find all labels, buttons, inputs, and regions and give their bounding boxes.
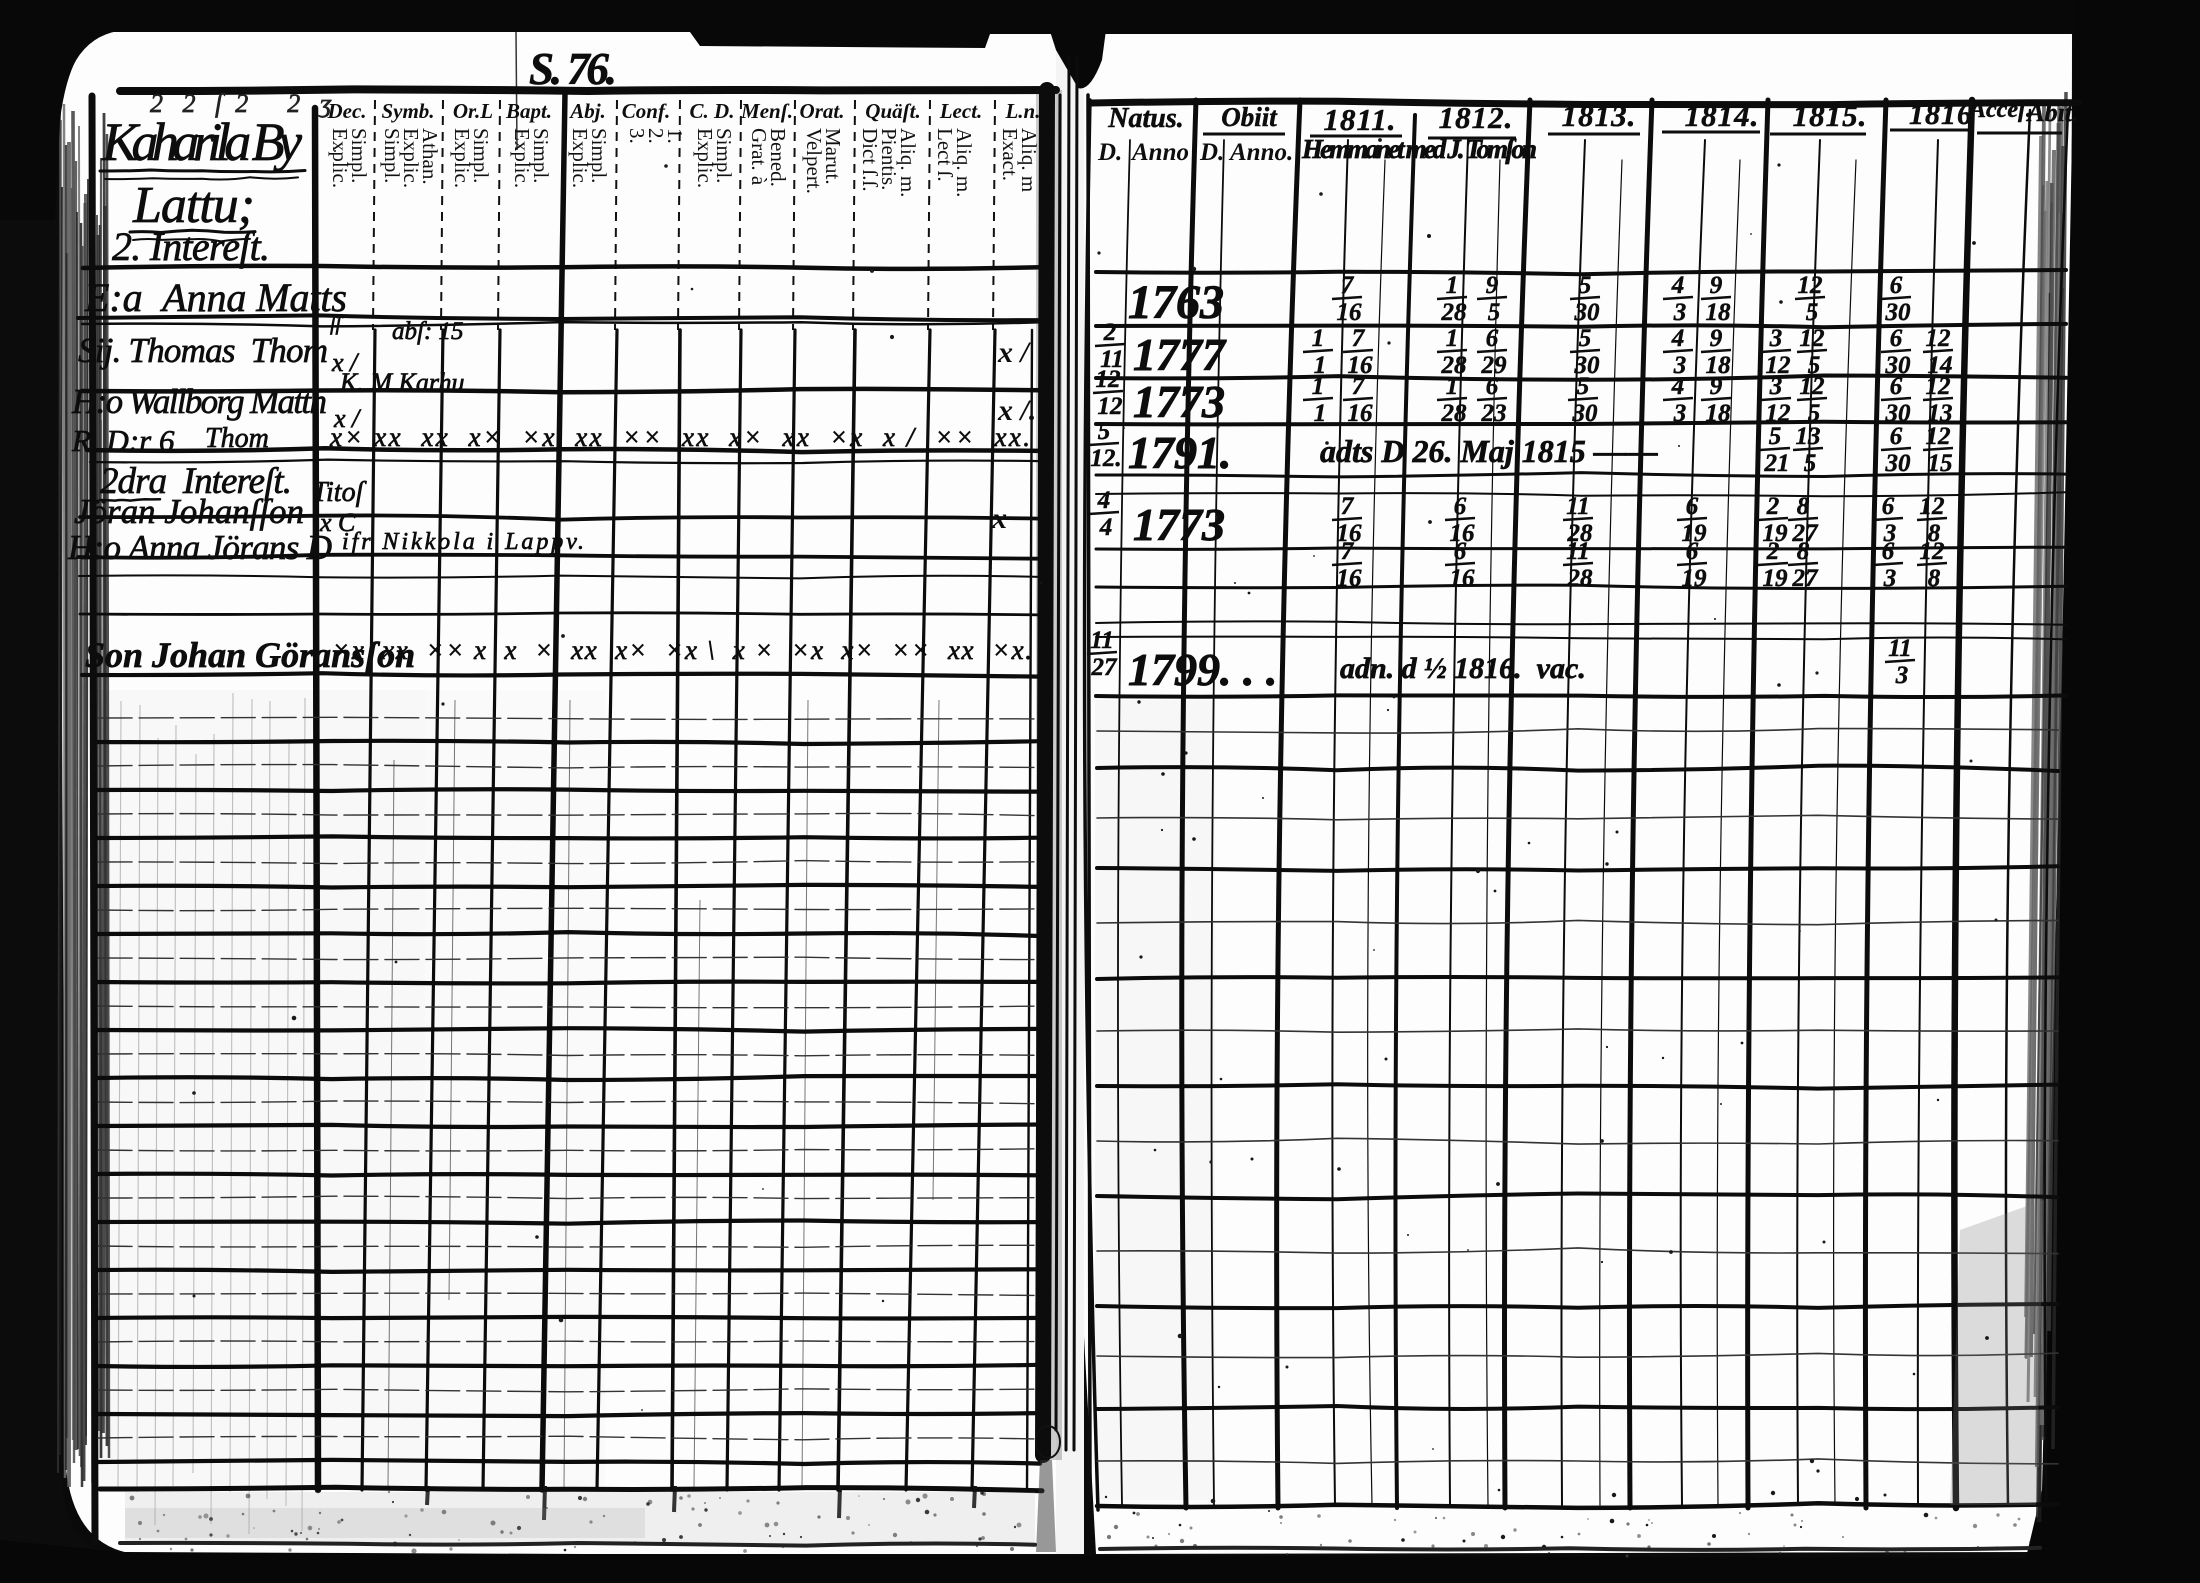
svg-text:8: 8 <box>1928 565 1941 592</box>
svg-text:Aliq. m.: Aliq. m. <box>896 128 920 197</box>
svg-text:Menſ.: Menſ. <box>740 99 793 123</box>
svg-text:1: 1 <box>1312 325 1325 352</box>
svg-text:Simpl.: Simpl. <box>587 128 611 183</box>
svg-text:30: 30 <box>1885 299 1912 326</box>
svg-text:R. D:r 6: R. D:r 6 <box>71 423 175 458</box>
svg-text:12: 12 <box>1920 538 1945 565</box>
svg-text:9: 9 <box>1710 373 1723 400</box>
svg-text:Anno.: Anno. <box>1228 139 1293 166</box>
svg-text:1: 1 <box>1446 373 1459 400</box>
svg-text:1: 1 <box>1312 373 1325 400</box>
svg-text:11: 11 <box>1090 627 1114 654</box>
svg-text:16: 16 <box>1450 565 1476 592</box>
svg-text:5: 5 <box>1488 299 1501 326</box>
svg-text:3: 3 <box>1769 373 1783 400</box>
svg-text:Quäſt.: Quäſt. <box>865 99 920 123</box>
svg-text:Sij. Thomas Thom: Sij. Thomas Thom <box>78 331 328 370</box>
svg-text:Orat.: Orat. <box>800 99 845 123</box>
svg-text:K. M Karhu: K. M Karhu <box>339 368 465 397</box>
svg-text:12: 12 <box>1800 325 1825 352</box>
svg-text:Symb.: Symb. <box>381 99 434 123</box>
svg-text:9: 9 <box>1486 272 1499 299</box>
svg-text:30: 30 <box>1574 299 1601 326</box>
svg-text:7: 7 <box>1352 325 1366 352</box>
svg-text:adn. d ½ 1816. vac.: adn. d ½ 1816. vac. <box>1340 652 1586 685</box>
svg-text:3: 3 <box>1769 325 1783 352</box>
svg-text:18: 18 <box>1706 299 1732 326</box>
svg-text:6: 6 <box>1882 538 1895 565</box>
svg-text:1777: 1777 <box>1133 329 1227 380</box>
svg-text:C. D.: C. D. <box>690 99 735 123</box>
svg-text:7: 7 <box>1341 272 1355 299</box>
svg-text:H:o Wallborg Matth: H:o Wallborg Matth <box>71 382 327 421</box>
svg-text:Thom: Thom <box>205 423 269 454</box>
svg-text:6: 6 <box>1882 493 1895 520</box>
svg-text:Natus.: Natus. <box>1107 103 1183 134</box>
svg-text:Titoſ: Titoſ <box>312 477 367 508</box>
svg-text:6: 6 <box>1686 538 1699 565</box>
svg-text:16: 16 <box>1337 299 1363 326</box>
svg-text:3: 3 <box>1673 299 1687 326</box>
svg-text:x: x <box>991 502 1007 535</box>
svg-text:1763: 1763 <box>1128 276 1224 329</box>
svg-text:Simpl.: Simpl. <box>529 128 553 183</box>
svg-text:Simpl.: Simpl. <box>469 128 493 183</box>
svg-text:6: 6 <box>1454 493 1467 520</box>
svg-text:2. Intereſt.: 2. Intereſt. <box>112 224 270 269</box>
svg-text:6: 6 <box>1890 423 1903 450</box>
svg-text:5: 5 <box>1098 418 1111 445</box>
svg-text:Marut.: Marut. <box>821 128 845 185</box>
svg-text:6: 6 <box>1890 272 1903 299</box>
svg-text:4: 4 <box>1097 487 1111 514</box>
svg-text:Bapt.: Bapt. <box>505 99 552 123</box>
svg-text:Dec.: Dec. <box>326 99 366 123</box>
svg-text:Jöran Johanſſon: Jöran Johanſſon <box>74 492 304 531</box>
svg-text:×x xx ×× x x × xx x× ×x: ×x xx ×× x x × xx x× ×x \ x × ×x x× ×× x… <box>332 635 1032 665</box>
svg-text:12: 12 <box>1798 272 1823 299</box>
svg-text:9: 9 <box>1710 272 1723 299</box>
svg-text:12: 12 <box>1926 373 1951 400</box>
svg-text:7: 7 <box>1341 493 1355 520</box>
svg-text:15: 15 <box>1928 450 1953 477</box>
svg-text:6: 6 <box>1454 538 1467 565</box>
svg-text:x /.: x /. <box>997 394 1036 427</box>
svg-text:6: 6 <box>1890 373 1903 400</box>
svg-text:ifr Nikkola i Lappv.: ifr Nikkola i Lappv. <box>342 529 584 555</box>
svg-text:Anno: Anno <box>1130 139 1189 166</box>
svg-text:1: 1 <box>1446 272 1459 299</box>
svg-text:Acceſ.: Acceſ. <box>1968 97 2032 123</box>
svg-text:1814.: 1814. <box>1685 98 1760 133</box>
svg-text:18: 18 <box>1706 400 1732 427</box>
svg-text:Athan.: Athan. <box>418 128 442 185</box>
svg-text:2: 2 <box>1766 493 1780 520</box>
svg-text:6: 6 <box>1686 493 1699 520</box>
svg-text:Kaharila By: Kaharila By <box>101 112 302 172</box>
svg-text:1791.: 1791. <box>1128 427 1232 478</box>
svg-text:Hemmanet med J. Tomſon: Hemmanet med J. Tomſon <box>1301 134 1537 164</box>
svg-text:7: 7 <box>1352 373 1366 400</box>
svg-text:Simpl.: Simpl. <box>712 128 736 183</box>
svg-text:16: 16 <box>1348 400 1374 427</box>
svg-text:19: 19 <box>1763 565 1789 592</box>
svg-text:E:a Anna Matts: E:a Anna Matts <box>84 275 347 320</box>
svg-text:11: 11 <box>1888 635 1912 662</box>
svg-text:30: 30 <box>1885 450 1912 477</box>
svg-text:4: 4 <box>1671 373 1685 400</box>
svg-text:12: 12 <box>1096 366 1121 393</box>
svg-text:19: 19 <box>1682 565 1708 592</box>
svg-text:12: 12 <box>1098 393 1123 420</box>
svg-text:27: 27 <box>1091 654 1119 681</box>
svg-text:Abj.: Abj. <box>568 99 606 123</box>
svg-text:11: 11 <box>1566 493 1590 520</box>
svg-text:5: 5 <box>1806 299 1819 326</box>
svg-text:4: 4 <box>1671 325 1685 352</box>
svg-text:1799. . .: 1799. . . <box>1128 644 1278 695</box>
svg-text:6: 6 <box>1486 373 1499 400</box>
svg-text:16: 16 <box>1337 565 1363 592</box>
svg-text:12.: 12. <box>1090 445 1121 472</box>
svg-text:Abit.: Abit. <box>2025 98 2078 127</box>
svg-text:27: 27 <box>1792 565 1820 592</box>
svg-text:5: 5 <box>1769 423 1782 450</box>
svg-text:23: 23 <box>1481 400 1507 427</box>
svg-text:Obiit: Obiit <box>1221 102 1278 132</box>
svg-text:30: 30 <box>1572 400 1599 427</box>
svg-text:Lect.: Lect. <box>939 99 983 123</box>
svg-text:4: 4 <box>1671 272 1685 299</box>
svg-text:11: 11 <box>1566 538 1590 565</box>
svg-text:12: 12 <box>1926 325 1951 352</box>
svg-text:1815.: 1815. <box>1793 98 1868 133</box>
svg-text:7: 7 <box>1341 538 1355 565</box>
svg-text:D.: D. <box>1097 139 1122 166</box>
svg-text:Conf.: Conf. <box>622 99 670 123</box>
svg-text:D.: D. <box>1199 139 1224 166</box>
svg-text:4: 4 <box>1099 514 1113 541</box>
svg-text:28: 28 <box>1441 299 1468 326</box>
svg-text:21: 21 <box>1764 450 1790 477</box>
svg-text:L.n.: L.n. <box>1004 99 1040 123</box>
svg-text:3: 3 <box>1895 662 1909 689</box>
svg-text:adts D 26. Maj 1815 ——: adts D 26. Maj 1815 —— <box>1320 433 1658 469</box>
svg-text:5: 5 <box>1577 373 1590 400</box>
svg-text:3: 3 <box>1673 400 1687 427</box>
svg-text:1813.: 1813. <box>1562 98 1637 133</box>
svg-text:Bened.: Bened. <box>766 128 790 187</box>
svg-text:1812.: 1812. <box>1439 100 1514 135</box>
svg-text:6: 6 <box>1486 325 1499 352</box>
svg-text:Simpl.: Simpl. <box>347 128 371 183</box>
svg-text:abſ: 15: abſ: 15 <box>392 318 464 345</box>
svg-text:28: 28 <box>1567 565 1594 592</box>
svg-text:1: 1 <box>1446 325 1459 352</box>
svg-text:1: 1 <box>1314 400 1327 427</box>
svg-text:8: 8 <box>1797 538 1810 565</box>
svg-text:3: 3 <box>1883 565 1897 592</box>
svg-text:Aliq. m.: Aliq. m. <box>952 128 976 197</box>
svg-text:1773: 1773 <box>1133 376 1225 427</box>
svg-text:1773: 1773 <box>1133 499 1225 550</box>
svg-text:5: 5 <box>1579 272 1592 299</box>
svg-text:5: 5 <box>1579 325 1592 352</box>
svg-text:2: 2 <box>1766 538 1780 565</box>
svg-text:12: 12 <box>1920 493 1945 520</box>
svg-text:13: 13 <box>1796 423 1821 450</box>
svg-text:5: 5 <box>1804 450 1817 477</box>
svg-text:x /: x / <box>997 336 1032 369</box>
svg-text:Or.L: Or.L <box>453 99 493 123</box>
svg-text:H:o Anna Jörans D: H:o Anna Jörans D <box>67 528 332 567</box>
svg-text:1.: 1. <box>663 128 687 144</box>
svg-text:8: 8 <box>1797 493 1810 520</box>
svg-text:9: 9 <box>1710 325 1723 352</box>
svg-text:2: 2 <box>1103 319 1117 346</box>
svg-text:6: 6 <box>1890 325 1903 352</box>
svg-text:28: 28 <box>1441 400 1468 427</box>
svg-text:12: 12 <box>1926 423 1951 450</box>
svg-text:1811.: 1811. <box>1323 102 1396 137</box>
svg-text:12: 12 <box>1800 373 1825 400</box>
svg-text:1816: 1816 <box>1909 98 1973 131</box>
